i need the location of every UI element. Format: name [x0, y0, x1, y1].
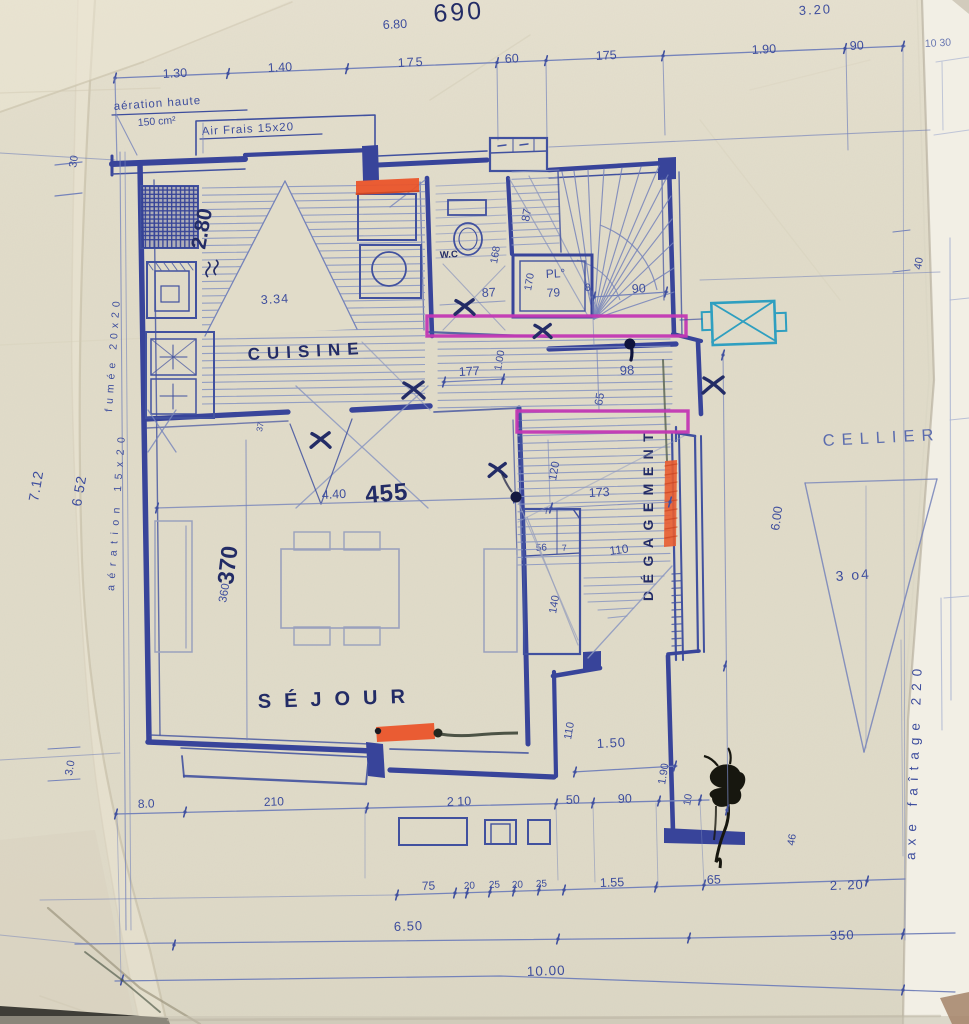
svg-text:40: 40	[912, 256, 926, 270]
svg-text:1.50: 1.50	[596, 734, 626, 751]
svg-text:60: 60	[504, 51, 519, 66]
svg-text:2 10: 2 10	[447, 794, 472, 809]
svg-text:3.34: 3.34	[260, 292, 289, 307]
svg-text:3.20: 3.20	[798, 1, 832, 18]
svg-text:173: 173	[588, 485, 610, 500]
svg-text:10.00: 10.00	[527, 963, 566, 979]
svg-text:1.90: 1.90	[751, 42, 776, 57]
svg-text:30: 30	[67, 154, 81, 168]
svg-text:2. 20: 2. 20	[830, 877, 864, 893]
svg-text:90: 90	[849, 38, 864, 53]
svg-text:65: 65	[707, 873, 721, 887]
svg-text:50: 50	[566, 793, 580, 807]
svg-text:110: 110	[608, 541, 629, 558]
svg-text:1.40: 1.40	[267, 60, 292, 75]
svg-text:175: 175	[397, 55, 425, 70]
svg-text:46: 46	[785, 833, 799, 847]
svg-text:75: 75	[422, 879, 436, 893]
svg-text:90: 90	[618, 792, 632, 806]
svg-text:175: 175	[595, 48, 617, 63]
svg-text:7: 7	[562, 543, 568, 553]
svg-text:20: 20	[464, 881, 476, 892]
svg-text:10 30: 10 30	[925, 37, 952, 50]
svg-text:370: 370	[212, 544, 242, 585]
svg-text:8.0: 8.0	[138, 796, 155, 811]
svg-text:PL°: PL°	[545, 266, 565, 281]
svg-text:6.80: 6.80	[382, 17, 407, 32]
svg-text:1.30: 1.30	[162, 66, 187, 81]
svg-text:177: 177	[458, 364, 480, 379]
svg-text:10: 10	[681, 793, 695, 807]
svg-text:690: 690	[432, 0, 485, 28]
svg-text:79: 79	[546, 285, 560, 300]
svg-text:1.55: 1.55	[600, 875, 625, 890]
svg-text:455: 455	[364, 478, 409, 509]
svg-text:20: 20	[512, 880, 524, 891]
svg-text:6.50: 6.50	[394, 918, 424, 934]
svg-text:210: 210	[264, 794, 285, 809]
svg-text:25: 25	[536, 879, 548, 890]
svg-text:87: 87	[520, 208, 534, 223]
svg-text:4.40: 4.40	[321, 487, 346, 502]
svg-text:8: 8	[585, 282, 592, 294]
svg-text:98: 98	[619, 362, 634, 378]
svg-text:65: 65	[593, 392, 607, 407]
svg-text:W.C: W.C	[440, 249, 459, 261]
svg-text:350: 350	[830, 927, 855, 943]
svg-text:37: 37	[254, 421, 266, 432]
svg-text:25: 25	[489, 880, 501, 891]
